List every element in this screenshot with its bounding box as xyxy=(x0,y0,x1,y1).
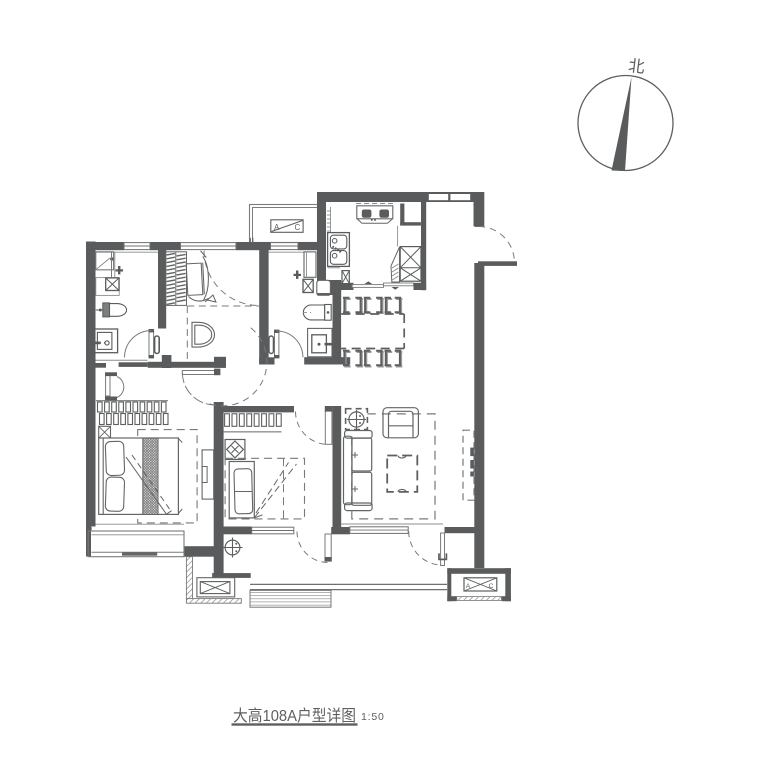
svg-text:1:50: 1:50 xyxy=(361,711,385,723)
svg-text:A: A xyxy=(274,223,280,232)
svg-text:北: 北 xyxy=(627,56,646,77)
svg-text:C: C xyxy=(489,583,494,590)
svg-text:A: A xyxy=(466,583,471,590)
svg-text:大高108A户型详图: 大高108A户型详图 xyxy=(233,707,356,725)
svg-text:C: C xyxy=(295,223,301,232)
